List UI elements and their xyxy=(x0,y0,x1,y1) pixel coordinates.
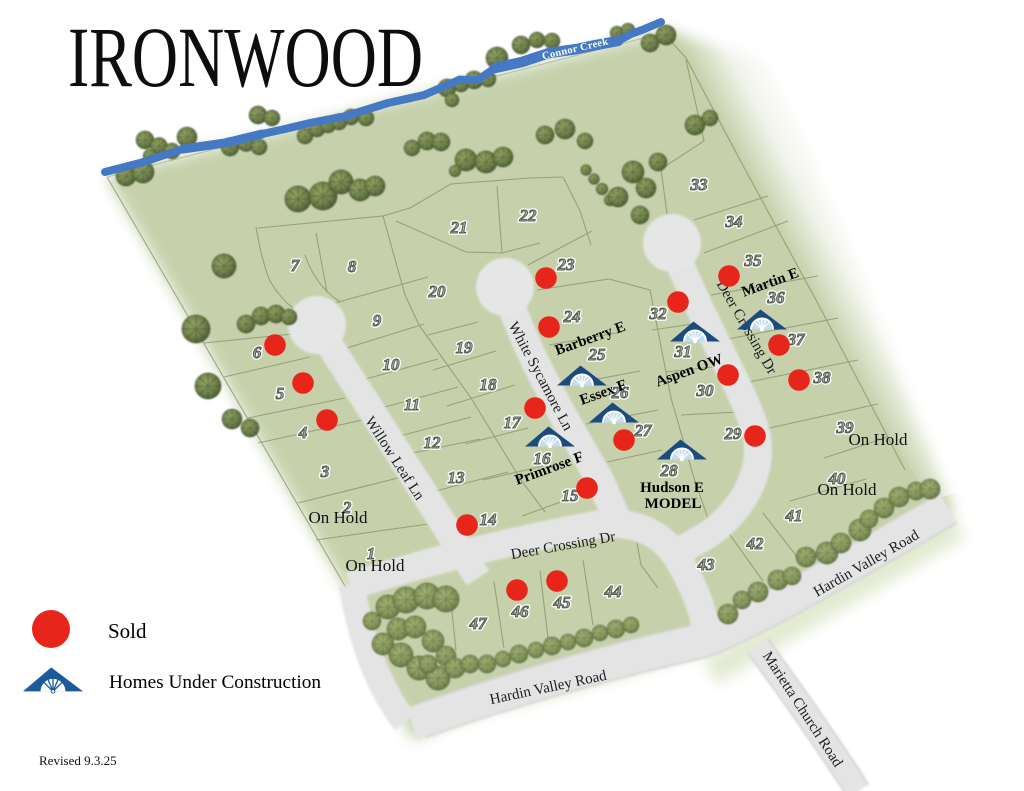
svg-text:Homes Under Construction: Homes Under Construction xyxy=(109,672,321,693)
svg-text:19: 19 xyxy=(456,338,474,357)
svg-text:38: 38 xyxy=(813,368,832,387)
svg-text:29: 29 xyxy=(724,424,743,443)
svg-text:On Hold: On Hold xyxy=(817,480,877,499)
svg-text:31: 31 xyxy=(674,342,692,361)
svg-text:5: 5 xyxy=(276,384,285,403)
svg-text:23: 23 xyxy=(557,255,576,274)
svg-text:18: 18 xyxy=(480,375,498,394)
svg-text:27: 27 xyxy=(634,421,654,440)
svg-text:11: 11 xyxy=(404,395,420,414)
svg-text:42: 42 xyxy=(746,534,765,553)
svg-text:4: 4 xyxy=(298,423,308,442)
svg-text:17: 17 xyxy=(504,413,523,432)
svg-text:On Hold: On Hold xyxy=(308,508,368,527)
svg-text:46: 46 xyxy=(511,602,530,621)
svg-text:24: 24 xyxy=(563,307,581,326)
svg-text:Hudson E: Hudson E xyxy=(640,480,704,496)
svg-text:3: 3 xyxy=(320,462,330,481)
svg-text:43: 43 xyxy=(697,555,716,574)
svg-text:21: 21 xyxy=(450,218,468,237)
svg-text:25: 25 xyxy=(588,345,607,364)
svg-text:22: 22 xyxy=(519,206,538,225)
svg-text:30: 30 xyxy=(696,381,715,400)
svg-text:41: 41 xyxy=(785,506,803,525)
svg-text:8: 8 xyxy=(348,257,357,276)
svg-text:47: 47 xyxy=(469,614,489,633)
svg-text:On Hold: On Hold xyxy=(345,556,405,575)
svg-text:34: 34 xyxy=(725,212,743,231)
svg-text:MODEL: MODEL xyxy=(645,496,702,512)
svg-text:35: 35 xyxy=(744,251,763,270)
svg-text:On Hold: On Hold xyxy=(848,430,908,449)
svg-text:6: 6 xyxy=(253,343,262,362)
svg-text:13: 13 xyxy=(448,468,466,487)
svg-text:14: 14 xyxy=(480,510,497,529)
svg-text:Revised 9.3.25: Revised 9.3.25 xyxy=(39,753,117,768)
svg-text:28: 28 xyxy=(660,461,679,480)
svg-text:Marietta Church Road: Marietta Church Road xyxy=(759,649,846,771)
svg-text:45: 45 xyxy=(553,593,572,612)
svg-text:44: 44 xyxy=(604,582,622,601)
svg-text:9: 9 xyxy=(373,311,382,330)
svg-text:Sold: Sold xyxy=(108,619,147,643)
svg-text:IRONWOOD: IRONWOOD xyxy=(68,9,423,105)
svg-text:12: 12 xyxy=(424,433,442,452)
svg-text:10: 10 xyxy=(383,355,401,374)
svg-text:20: 20 xyxy=(428,282,447,301)
svg-text:33: 33 xyxy=(690,175,709,194)
svg-text:32: 32 xyxy=(649,304,668,323)
